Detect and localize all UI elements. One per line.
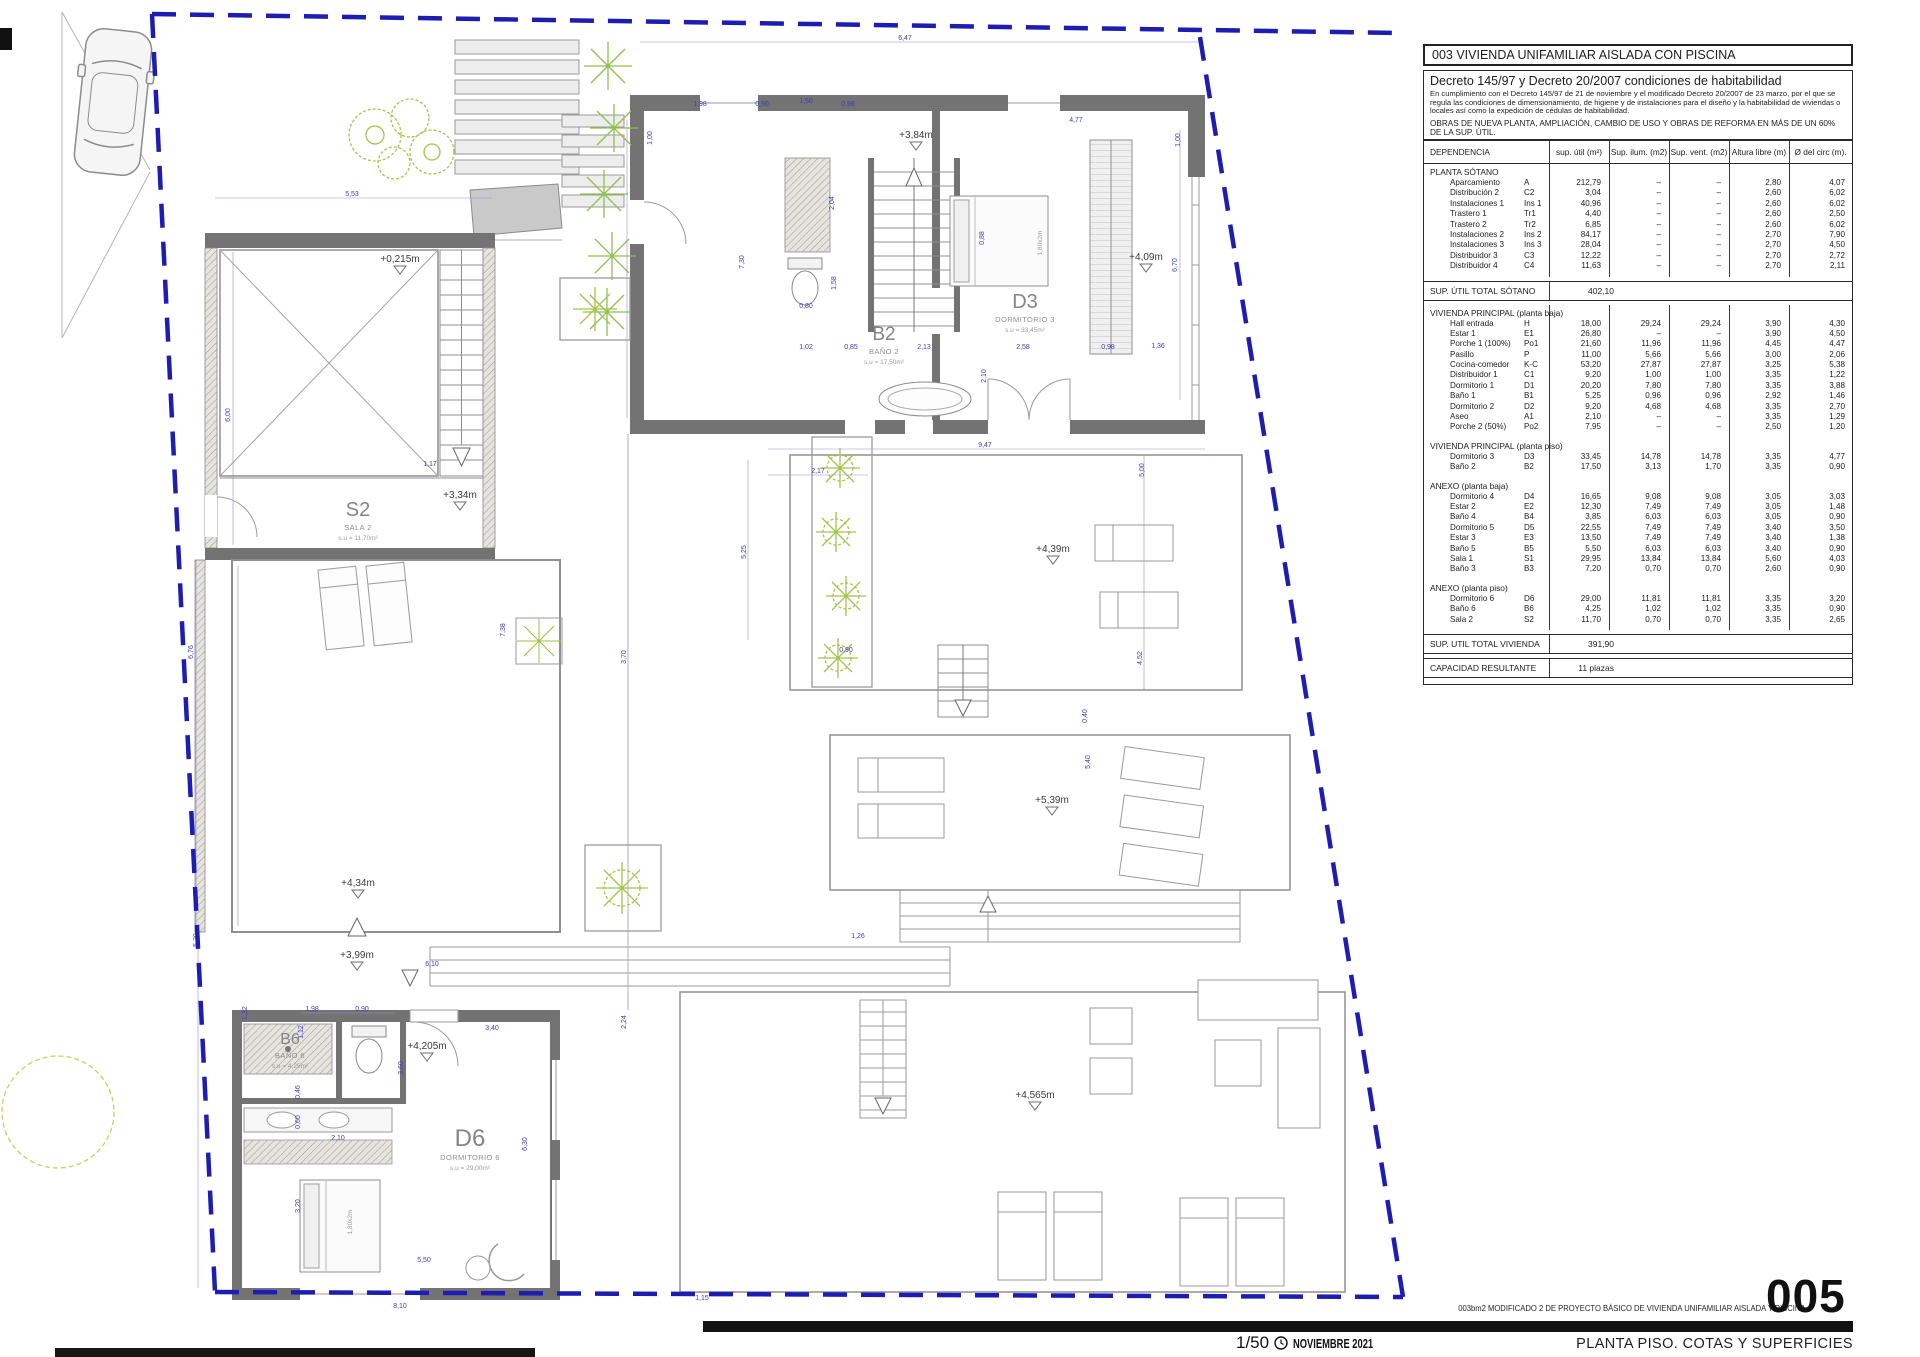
sheet-number: 005 xyxy=(1766,1272,1856,1320)
room-area-label: s.u = 11,70m² xyxy=(338,535,378,542)
room-name: Estar 3 xyxy=(1450,533,1476,543)
room-code: E1 xyxy=(1524,329,1534,339)
level-label: +5,39m xyxy=(1035,795,1069,806)
level-triangle-icon xyxy=(351,962,363,970)
cell-value: – xyxy=(1671,422,1721,432)
room-name: Dormitorio 2 xyxy=(1450,402,1494,412)
dim-label: 9,47 xyxy=(978,442,992,449)
room-terrace-434 xyxy=(195,560,562,936)
dim-label: 5,40 xyxy=(1085,755,1092,769)
vanity-counter xyxy=(244,1108,392,1132)
room-code: Ins 2 xyxy=(1524,230,1542,240)
level-arrow-up xyxy=(348,918,366,936)
dim-label: 2,13 xyxy=(917,344,931,351)
section-heading: ANEXO (planta piso) xyxy=(1430,583,1508,593)
table-row: Baño 6B64,251,021,023,350,90 xyxy=(1424,604,1852,614)
column-header: Sup. vent. (m2) xyxy=(1669,147,1729,157)
bed-size-label: 1,80x2m xyxy=(1037,231,1044,256)
cell-value: 6,85 xyxy=(1551,220,1601,230)
cell-value: 5,66 xyxy=(1671,350,1721,360)
dim-label: 1,15 xyxy=(695,1295,709,1302)
dim-label: 7,38 xyxy=(500,623,507,637)
cell-value: – xyxy=(1611,178,1661,188)
garden-steps xyxy=(402,947,950,986)
cell-value: – xyxy=(1611,209,1661,219)
room-name: Hall entrada xyxy=(1450,319,1494,329)
room-name: Distribuidor 1 xyxy=(1450,370,1498,380)
cell-value: 9,08 xyxy=(1611,492,1661,502)
dim-label: 0,80 xyxy=(799,303,813,310)
cell-value: 13,50 xyxy=(1551,533,1601,543)
cell-value: 3,35 xyxy=(1731,594,1781,604)
dim-label: 2,17 xyxy=(811,468,825,475)
bed-d6 xyxy=(300,1180,380,1272)
room-name: Estar 1 xyxy=(1450,329,1476,339)
section-heading: VIVIENDA PRINCIPAL (planta baja) xyxy=(1430,308,1563,318)
door-swing xyxy=(1029,379,1070,420)
cell-value: 17,50 xyxy=(1551,462,1601,472)
cell-value: 7,80 xyxy=(1671,381,1721,391)
room-name-label: SALA 2 xyxy=(344,523,371,532)
cell-value: 12,30 xyxy=(1551,502,1601,512)
decreto-heading: Decreto 145/97 y Decreto 20/2007 condici… xyxy=(1430,74,1846,88)
decreto-body: En cumplimiento con el Decreto 145/97 de… xyxy=(1430,90,1846,116)
sun-lounger-stack xyxy=(1107,747,1216,887)
cell-value: 2,60 xyxy=(1731,199,1781,209)
pergola-louvres xyxy=(455,40,579,174)
room-code: D2 xyxy=(1524,402,1534,412)
cell-value: 3,20 xyxy=(1791,594,1845,604)
dim-label: 1,58 xyxy=(831,276,838,290)
plant-icon xyxy=(816,512,856,552)
room-name: Sala 2 xyxy=(1450,615,1473,625)
toilet xyxy=(788,258,822,305)
stairs-terraces xyxy=(938,645,988,717)
cell-value: – xyxy=(1671,240,1721,250)
cell-value: 4,40 xyxy=(1551,209,1601,219)
table-row: Baño 3B37,200,700,702,600,90 xyxy=(1424,564,1852,574)
dim-label: 2,10 xyxy=(331,1135,345,1142)
table-row: Trastero 1Tr14,40––2,602,50 xyxy=(1424,209,1852,219)
sink xyxy=(319,1112,349,1128)
tree-icon xyxy=(410,130,454,174)
room-name: Dormitorio 4 xyxy=(1450,492,1494,502)
palm-icon xyxy=(584,42,632,90)
cell-value: 1,29 xyxy=(1791,412,1845,422)
cell-value: – xyxy=(1671,220,1721,230)
cell-value: 3,40 xyxy=(1731,533,1781,543)
cell-value: 3,90 xyxy=(1731,319,1781,329)
level-label: +4,09m xyxy=(1129,252,1163,263)
dim-label: 1,17 xyxy=(423,461,437,468)
sink xyxy=(267,1112,297,1128)
cell-value: 11,96 xyxy=(1611,339,1661,349)
table-row: Estar 3E313,507,497,493,401,38 xyxy=(1424,533,1852,543)
room-code: B6 xyxy=(1524,604,1534,614)
total-value: 11 plazas xyxy=(1552,659,1614,677)
level-triangle-icon xyxy=(910,142,922,150)
floor-plan: 6,475,531,980,901,500,964,771,001,007,30… xyxy=(0,0,1420,1357)
cell-value: 84,17 xyxy=(1551,230,1601,240)
cell-value: 3,05 xyxy=(1731,492,1781,502)
plant-icon xyxy=(818,638,858,678)
cell-value: 1,38 xyxy=(1791,533,1845,543)
room-code: C2 xyxy=(1524,188,1534,198)
column-header: DEPENDENCIA xyxy=(1430,147,1490,157)
cell-value: 2,10 xyxy=(1551,412,1601,422)
cell-value: 22,55 xyxy=(1551,523,1601,533)
project-reference-line: 003bm2 MODIFICADO 2 DE PROYECTO BÁSICO D… xyxy=(1458,1303,1775,1313)
table-row: Porche 2 (50%)Po27,95––2,501,20 xyxy=(1424,422,1852,432)
cell-value: 4,77 xyxy=(1791,452,1845,462)
cell-value: 7,80 xyxy=(1611,381,1661,391)
dim-label: 5,50 xyxy=(417,1257,431,1264)
cell-value: 27,87 xyxy=(1611,360,1661,370)
room-name: Trastero 1 xyxy=(1450,209,1487,219)
palm-icon xyxy=(590,104,638,152)
cell-value: 6,02 xyxy=(1791,220,1845,230)
cell-value: 1,00 xyxy=(1611,370,1661,380)
table-row: Baño 2B217,503,131,703,350,90 xyxy=(1424,462,1852,472)
cell-value: 3,03 xyxy=(1791,492,1845,502)
cell-value: 1,02 xyxy=(1671,604,1721,614)
cell-value: 7,20 xyxy=(1551,564,1601,574)
cell-value: – xyxy=(1611,329,1661,339)
room-code: D6 xyxy=(1524,594,1534,604)
cell-value: 2,70 xyxy=(1731,240,1781,250)
cell-value: – xyxy=(1611,230,1661,240)
scale-and-date: 1/50 NOVIEMBRE 2021 xyxy=(1236,1334,1404,1352)
cell-value: 1,70 xyxy=(1671,462,1721,472)
cell-value: 2,60 xyxy=(1731,209,1781,219)
cell-value: 6,03 xyxy=(1611,544,1661,554)
room-name: Porche 2 (50%) xyxy=(1450,422,1506,432)
table-row: Estar 2E212,307,497,493,051,48 xyxy=(1424,502,1852,512)
total-label: SUP. UTIL TOTAL VIVIENDA xyxy=(1430,635,1540,653)
cell-value: 4,03 xyxy=(1791,554,1845,564)
stairs-s2 xyxy=(440,250,483,476)
room-name: Dormitorio 5 xyxy=(1450,523,1494,533)
room-name: Dormitorio 1 xyxy=(1450,381,1494,391)
closet xyxy=(785,158,830,252)
project-title: 003 VIVIENDA UNIFAMILIAR AISLADA CON PIS… xyxy=(1432,48,1736,62)
cell-value: – xyxy=(1671,178,1721,188)
cell-value: 7,49 xyxy=(1611,502,1661,512)
cell-value: 3,35 xyxy=(1731,402,1781,412)
cell-value: 2,60 xyxy=(1731,220,1781,230)
dim-label: 2,58 xyxy=(1016,344,1030,351)
dim-label: 6,10 xyxy=(425,961,439,968)
room-name: Cocina-comedor xyxy=(1450,360,1509,370)
column-header: sup. útil (m²) xyxy=(1549,147,1609,157)
cell-value: 2,70 xyxy=(1731,230,1781,240)
dim-label: 8,10 xyxy=(393,1303,407,1310)
cell-value: 2,06 xyxy=(1791,350,1845,360)
level-label: +4,39m xyxy=(1036,544,1070,555)
dim-label: 1,32 xyxy=(242,1006,249,1020)
level-label: +3,34m xyxy=(443,490,477,501)
cell-value: 5,50 xyxy=(1551,544,1601,554)
cell-value: 11,81 xyxy=(1671,594,1721,604)
dim-label: 1,98 xyxy=(693,101,707,108)
cell-value: 1,22 xyxy=(1791,370,1845,380)
table-row: Sala 2S211,700,700,703,352,65 xyxy=(1424,615,1852,625)
level-label: +0,215m xyxy=(380,254,419,265)
terrace-439 xyxy=(790,455,1242,690)
dim-label: 7,30 xyxy=(739,255,746,269)
cell-value: 13,84 xyxy=(1671,554,1721,564)
room-name: Distribuidor 4 xyxy=(1450,261,1498,271)
cell-value: 9,20 xyxy=(1551,402,1601,412)
dim-label: 3,60 xyxy=(398,1061,405,1075)
palm-icon xyxy=(588,232,636,280)
cell-value: 2,92 xyxy=(1731,391,1781,401)
room-code: B5 xyxy=(1524,544,1534,554)
table-row: Baño 4B43,856,036,033,050,90 xyxy=(1424,512,1852,522)
room-name: Sala 1 xyxy=(1450,554,1473,564)
room-name-label: DORMITORIO 3 xyxy=(995,315,1055,324)
cell-value: 4,07 xyxy=(1791,178,1845,188)
cell-value: 7,49 xyxy=(1671,502,1721,512)
cell-value: 4,50 xyxy=(1791,240,1845,250)
cell-value: 0,90 xyxy=(1791,462,1845,472)
panel-title-box: 003 VIVIENDA UNIFAMILIAR AISLADA CON PIS… xyxy=(1423,44,1853,66)
sun-lounger xyxy=(1100,592,1178,628)
room-code-label: D6 xyxy=(455,1125,486,1152)
cell-value: 26,80 xyxy=(1551,329,1601,339)
cell-value: 2,50 xyxy=(1791,209,1845,219)
dim-label: 5,53 xyxy=(345,191,359,198)
cell-value: 5,66 xyxy=(1611,350,1661,360)
cell-value: 6,03 xyxy=(1611,512,1661,522)
cell-value: 4,25 xyxy=(1551,604,1601,614)
table-row: Sala 1S129,9513,8413,845,604,03 xyxy=(1424,554,1852,564)
level-triangle-icon xyxy=(1046,807,1058,815)
table-row: Baño 1B15,250,960,962,921,46 xyxy=(1424,391,1852,401)
property-boundary xyxy=(152,14,1403,1297)
room-area-label: s.u = 33,45m² xyxy=(1005,327,1046,334)
sun-lounger xyxy=(1095,525,1173,561)
terrace-539 xyxy=(830,735,1290,890)
total-value: 402,10 xyxy=(1552,282,1614,300)
room-name: Trastero 2 xyxy=(1450,220,1487,230)
room-code: D4 xyxy=(1524,492,1534,502)
cell-value: 6,02 xyxy=(1791,188,1845,198)
cell-value: 0,70 xyxy=(1671,615,1721,625)
sun-lounger xyxy=(858,758,944,792)
cell-value: 1,48 xyxy=(1791,502,1845,512)
cell-value: 33,45 xyxy=(1551,452,1601,462)
plant-icon xyxy=(820,448,860,488)
cell-value: 29,24 xyxy=(1611,319,1661,329)
level-label: +4,565m xyxy=(1015,1090,1054,1101)
cell-value: – xyxy=(1611,188,1661,198)
room-code-label: B6 xyxy=(280,1031,300,1048)
cell-value: – xyxy=(1671,412,1721,422)
dim-label: 0,40 xyxy=(1082,709,1089,723)
dim-label: 6,30 xyxy=(522,1137,529,1151)
tree-icon xyxy=(391,99,429,137)
level-label: +4,34m xyxy=(341,878,375,889)
room-name: Baño 6 xyxy=(1450,604,1476,614)
table-row: Instalaciones 3Ins 328,04––2,704,50 xyxy=(1424,240,1852,250)
cell-value: 3,85 xyxy=(1551,512,1601,522)
sun-lounger xyxy=(366,562,412,646)
room-code: D1 xyxy=(1524,381,1534,391)
wardrobe xyxy=(244,1140,392,1164)
cell-value: 2,11 xyxy=(1791,261,1845,271)
car xyxy=(68,26,159,177)
room-code: D5 xyxy=(1524,523,1534,533)
cell-value: 2,60 xyxy=(1731,564,1781,574)
room-name: Instalaciones 2 xyxy=(1450,230,1504,240)
cell-value: 27,87 xyxy=(1671,360,1721,370)
building-b2-d3 xyxy=(562,95,1205,434)
dim-label: 6,70 xyxy=(1172,258,1179,272)
cell-value: – xyxy=(1611,422,1661,432)
cell-value: 7,95 xyxy=(1551,422,1601,432)
dim-label: 1,26 xyxy=(851,933,865,940)
column-header: Altura libre (m) xyxy=(1729,147,1789,157)
table-row: Dormitorio 6D629,0011,8111,813,353,20 xyxy=(1424,594,1852,604)
room-code-label: D3 xyxy=(1012,291,1038,313)
dim-label: 3,40 xyxy=(485,1025,499,1032)
level-triangle-icon xyxy=(1140,264,1152,272)
cell-value: 1,46 xyxy=(1791,391,1845,401)
table-row: AseoA12,10––3,351,29 xyxy=(1424,412,1852,422)
room-name: Instalaciones 3 xyxy=(1450,240,1504,250)
total-row: SUP. ÚTIL TOTAL SÓTANO402,10 xyxy=(1424,281,1852,301)
room-name: Dormitorio 6 xyxy=(1450,594,1494,604)
cell-value: 21,60 xyxy=(1551,339,1601,349)
cell-value: 7,49 xyxy=(1611,533,1661,543)
cell-value: 29,95 xyxy=(1551,554,1601,564)
cell-value: 212,79 xyxy=(1551,178,1601,188)
cell-value: 3,00 xyxy=(1731,350,1781,360)
cell-value: – xyxy=(1671,188,1721,198)
level-triangle-icon xyxy=(421,1053,433,1061)
decreto-box: Decreto 145/97 y Decreto 20/2007 condici… xyxy=(1423,70,1853,140)
vegetation xyxy=(2,42,872,1168)
level-triangle-icon xyxy=(454,502,466,510)
bathtub xyxy=(879,382,971,416)
room-code: S1 xyxy=(1524,554,1534,564)
cell-value: 6,03 xyxy=(1671,544,1721,554)
tree-icon xyxy=(2,1056,114,1168)
door-swing xyxy=(988,379,1029,420)
room-code: C1 xyxy=(1524,370,1534,380)
room-code: B4 xyxy=(1524,512,1534,522)
table-row: AparcamientoA212,79––2,804,07 xyxy=(1424,178,1852,188)
cell-value: 3,35 xyxy=(1731,412,1781,422)
cell-value: 2,80 xyxy=(1731,178,1781,188)
room-code: D3 xyxy=(1524,452,1534,462)
cell-value: 2,72 xyxy=(1791,251,1845,261)
cell-value: – xyxy=(1611,261,1661,271)
clock-icon xyxy=(1274,1336,1288,1350)
cell-value: 4,45 xyxy=(1731,339,1781,349)
room-name: Instalaciones 1 xyxy=(1450,199,1504,209)
dim-label: 3,20 xyxy=(295,1199,302,1213)
room-area-label: s.u = 29,00m² xyxy=(450,1165,491,1172)
dim-label: 0,96 xyxy=(841,101,855,108)
sheet-title: PLANTA PISO. COTAS Y SUPERFICIES xyxy=(1453,1336,1853,1352)
cell-value: 7,49 xyxy=(1671,533,1721,543)
room-area-label: s.u = 17,50m² xyxy=(864,359,905,366)
scale-value: 1/50 xyxy=(1236,1333,1269,1353)
cell-value: 3,35 xyxy=(1731,615,1781,625)
dim-label: 0,90 xyxy=(755,101,769,108)
cell-value: 28,04 xyxy=(1551,240,1601,250)
cell-value: 7,90 xyxy=(1791,230,1845,240)
cell-value: – xyxy=(1671,199,1721,209)
room-name: Pasillo xyxy=(1450,350,1474,360)
cell-value: 3,05 xyxy=(1731,502,1781,512)
cell-value: 14,78 xyxy=(1671,452,1721,462)
room-code: S2 xyxy=(1524,615,1534,625)
column-header: Sup. ilum. (m2) xyxy=(1609,147,1669,157)
tree-icon xyxy=(378,147,410,179)
cell-value: 2,70 xyxy=(1791,402,1845,412)
dim-label: 1,36 xyxy=(1151,343,1165,350)
room-name: Baño 1 xyxy=(1450,391,1476,401)
cell-value: 3,35 xyxy=(1731,381,1781,391)
room-code: C4 xyxy=(1524,261,1534,271)
cell-value: 6,02 xyxy=(1791,199,1845,209)
cell-value: 0,96 xyxy=(1611,391,1661,401)
cell-value: 12,22 xyxy=(1551,251,1601,261)
date-label: NOVIEMBRE 2021 xyxy=(1293,1336,1373,1351)
sun-lounger xyxy=(858,804,944,838)
cell-value: – xyxy=(1671,230,1721,240)
room-name: Baño 2 xyxy=(1450,462,1476,472)
dim-label: 5,25 xyxy=(741,545,748,559)
room-name: Baño 3 xyxy=(1450,564,1476,574)
room-name: Distribuidor 3 xyxy=(1450,251,1498,261)
table-row: Trastero 2Tr26,85––2,606,02 xyxy=(1424,220,1852,230)
cell-value: 14,78 xyxy=(1611,452,1661,462)
room-code: E2 xyxy=(1524,502,1534,512)
cell-value: – xyxy=(1611,412,1661,422)
room-code: B2 xyxy=(1524,462,1534,472)
cell-value: 20,20 xyxy=(1551,381,1601,391)
bed-size-label: 1,80x2m xyxy=(347,1210,354,1235)
dim-label: 1,00 xyxy=(647,131,654,145)
cell-value: 0,90 xyxy=(1791,604,1845,614)
cell-value: – xyxy=(1611,199,1661,209)
dim-label: 2,10 xyxy=(981,369,988,383)
dim-label: 5,00 xyxy=(1139,463,1146,477)
door-swing xyxy=(644,202,686,244)
cell-value: 2,65 xyxy=(1791,615,1845,625)
total-row: CAPACIDAD RESULTANTE11 plazas xyxy=(1424,658,1852,678)
cell-value: 9,20 xyxy=(1551,370,1601,380)
cell-value: 3,88 xyxy=(1791,381,1845,391)
table-row: Distribuidor 1C19,201,001,003,351,22 xyxy=(1424,370,1852,380)
cell-value: 3,35 xyxy=(1731,370,1781,380)
room-code: E3 xyxy=(1524,533,1534,543)
room-code: K-C xyxy=(1524,360,1538,370)
dim-label: 0,90 xyxy=(355,1006,369,1013)
dim-label: 3,70 xyxy=(621,650,628,664)
room-code: Tr1 xyxy=(1524,209,1536,219)
cell-value: 3,35 xyxy=(1731,604,1781,614)
cell-value: 4,47 xyxy=(1791,339,1845,349)
armchair xyxy=(489,1244,524,1281)
cell-value: 29,00 xyxy=(1551,594,1601,604)
bottom-strip xyxy=(55,1348,535,1357)
table-row: Instalaciones 2Ins 284,17––2,707,90 xyxy=(1424,230,1852,240)
